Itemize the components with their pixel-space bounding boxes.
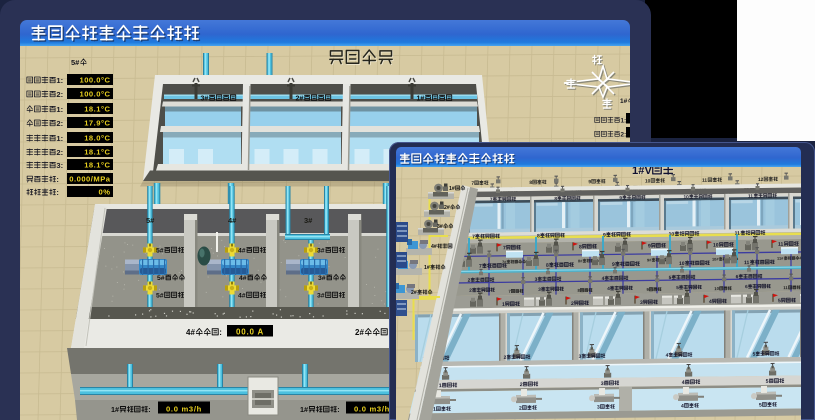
svg-text::: : (219, 328, 222, 337)
svg-text:3#: 3# (317, 248, 325, 255)
svg-text:8: 8 (579, 244, 582, 250)
svg-text:8: 8 (529, 180, 532, 186)
svg-text:2: 2 (519, 406, 522, 412)
svg-text:11: 11 (748, 194, 753, 199)
svg-text:2: 2 (468, 278, 471, 284)
svg-text::: : (56, 188, 59, 197)
svg-text:3#: 3# (437, 224, 443, 230)
svg-text:5: 5 (759, 402, 762, 408)
svg-text:11: 11 (744, 260, 750, 266)
svg-text:3: 3 (579, 354, 582, 360)
svg-text:2#: 2# (355, 328, 364, 337)
svg-text:18.0°C: 18.0°C (84, 134, 110, 143)
svg-text:4: 4 (709, 299, 712, 305)
svg-text:7: 7 (471, 181, 474, 187)
svg-text:9: 9 (648, 243, 651, 249)
svg-text:12: 12 (758, 177, 764, 183)
svg-text::: : (56, 175, 59, 184)
svg-text:7: 7 (472, 234, 475, 240)
svg-text:6: 6 (745, 284, 748, 289)
svg-text:2:: 2: (56, 148, 63, 157)
svg-text:11: 11 (778, 242, 784, 248)
svg-text:4#: 4# (431, 244, 437, 250)
svg-text:4: 4 (602, 276, 605, 282)
svg-text:4#: 4# (238, 248, 246, 255)
svg-text:6: 6 (736, 274, 739, 280)
svg-text:10: 10 (714, 286, 719, 291)
svg-text:1#: 1# (449, 186, 455, 192)
svg-text:5: 5 (766, 379, 769, 385)
svg-text:5#: 5# (157, 275, 165, 282)
svg-text:18.1°C: 18.1°C (84, 161, 110, 170)
svg-text:9: 9 (619, 195, 622, 200)
svg-text:3: 3 (597, 405, 600, 411)
svg-text:3: 3 (538, 287, 541, 292)
svg-text:8: 8 (554, 196, 557, 201)
svg-text:2: 2 (504, 355, 507, 361)
svg-text:5#: 5# (146, 216, 155, 225)
svg-text:2#: 2# (444, 205, 450, 211)
svg-text:4: 4 (682, 380, 685, 386)
svg-text:3:: 3: (56, 161, 63, 170)
svg-text:0.000/MPa: 0.000/MPa (69, 175, 111, 184)
svg-text:3: 3 (535, 277, 538, 283)
svg-text:1#: 1# (300, 405, 308, 414)
svg-text:1#: 1# (111, 405, 119, 414)
svg-text:5#: 5# (71, 58, 80, 67)
svg-text:2:: 2: (56, 119, 63, 128)
svg-text:9: 9 (588, 179, 591, 185)
svg-text:1#: 1# (620, 98, 628, 105)
svg-text:3#: 3# (201, 96, 209, 103)
svg-text:3#: 3# (304, 216, 313, 225)
svg-text:1: 1 (439, 383, 442, 389)
svg-text:2: 2 (571, 301, 574, 307)
svg-text:1: 1 (433, 407, 436, 413)
svg-text:100.0°C: 100.0°C (79, 90, 110, 99)
svg-text:5: 5 (676, 285, 679, 290)
svg-text:10: 10 (713, 243, 719, 249)
svg-text:9: 9 (612, 262, 615, 268)
svg-text:11: 11 (783, 285, 788, 290)
svg-text:2:: 2: (56, 90, 63, 99)
svg-text:7: 7 (490, 197, 493, 202)
svg-text:5: 5 (669, 275, 672, 281)
svg-text:4#: 4# (186, 328, 195, 337)
svg-text:1: 1 (502, 302, 505, 308)
svg-text:5#: 5# (156, 248, 164, 255)
svg-text:3: 3 (601, 381, 604, 387)
svg-text:5#: 5# (156, 293, 164, 300)
svg-text:3: 3 (640, 300, 643, 306)
svg-text:10: 10 (684, 194, 690, 199)
svg-text:11: 11 (702, 178, 707, 184)
svg-text:1:: 1: (56, 76, 63, 85)
svg-text:1:: 1: (56, 105, 63, 114)
svg-text::: : (148, 405, 150, 414)
svg-text:1#: 1# (424, 265, 430, 271)
svg-text:17.9°C: 17.9°C (84, 119, 110, 128)
svg-text:18.1°C: 18.1°C (84, 105, 110, 114)
svg-text:1:: 1: (56, 134, 63, 143)
svg-text:4: 4 (607, 286, 610, 291)
svg-text:5: 5 (753, 352, 756, 358)
svg-text:0.0 m3/h: 0.0 m3/h (166, 405, 202, 414)
svg-text:2: 2 (469, 288, 472, 293)
svg-text:7: 7 (503, 245, 506, 251)
svg-text:4#: 4# (239, 275, 247, 282)
svg-text:00.0 A: 00.0 A (236, 328, 264, 337)
svg-text::: : (337, 405, 339, 414)
svg-text:0%: 0% (99, 188, 111, 197)
svg-text:1#: 1# (417, 96, 425, 103)
svg-text:2#: 2# (411, 290, 417, 296)
svg-text:2:: 2: (620, 132, 626, 139)
svg-text:2: 2 (520, 382, 523, 388)
svg-text:0.0 m3/h: 0.0 m3/h (354, 405, 390, 414)
svg-text:10#: 10# (712, 257, 719, 262)
svg-text:3#: 3# (318, 275, 326, 282)
svg-text:4: 4 (681, 403, 684, 409)
svg-text:1#V: 1#V (632, 167, 652, 177)
svg-text:4#: 4# (228, 216, 237, 225)
svg-text:10: 10 (679, 261, 685, 267)
svg-text:7: 7 (479, 264, 482, 270)
svg-text:4#: 4# (238, 293, 246, 300)
svg-text:8: 8 (537, 233, 540, 239)
svg-text:18.1°C: 18.1°C (84, 148, 110, 157)
svg-text:100.0°C: 100.0°C (79, 76, 110, 85)
svg-text:1:: 1: (620, 118, 626, 125)
svg-text:2#: 2# (296, 96, 304, 103)
svg-text:3#: 3# (317, 293, 325, 300)
svg-text:10: 10 (645, 178, 651, 184)
svg-text:4: 4 (666, 353, 669, 359)
svg-text:8: 8 (546, 263, 549, 269)
svg-text:11#: 11# (777, 256, 784, 261)
svg-text:5: 5 (778, 298, 781, 304)
